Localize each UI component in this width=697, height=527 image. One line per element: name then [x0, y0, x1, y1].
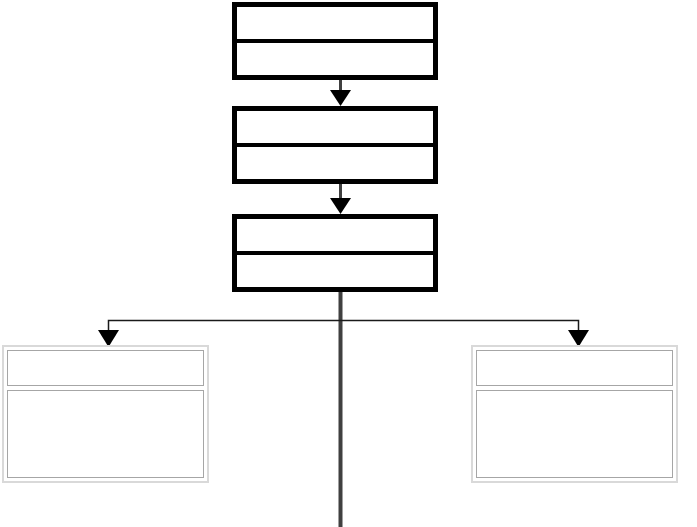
connector-1-2-arrowhead-icon	[330, 90, 351, 106]
flow-node-level-3	[232, 214, 438, 292]
flow-node-level-1-body-row	[237, 43, 433, 75]
panel-right	[471, 345, 678, 483]
flow-node-level-2-body-row	[237, 147, 433, 179]
panel-left-body	[7, 390, 204, 478]
flow-node-level-3-title-row	[237, 219, 433, 255]
panel-left-header	[7, 350, 204, 386]
flowchart-canvas	[0, 0, 697, 527]
panel-right-body	[476, 390, 673, 478]
panel-left	[2, 345, 209, 483]
branch-line	[109, 321, 579, 334]
flow-node-level-2-title-row	[237, 111, 433, 147]
panel-right-header	[476, 350, 673, 386]
flow-node-level-2	[232, 106, 438, 184]
flow-node-level-1	[232, 2, 438, 80]
flow-node-level-1-title-row	[237, 7, 433, 43]
flow-node-level-3-body-row	[237, 255, 433, 287]
connector-2-3-arrowhead-icon	[330, 198, 351, 214]
